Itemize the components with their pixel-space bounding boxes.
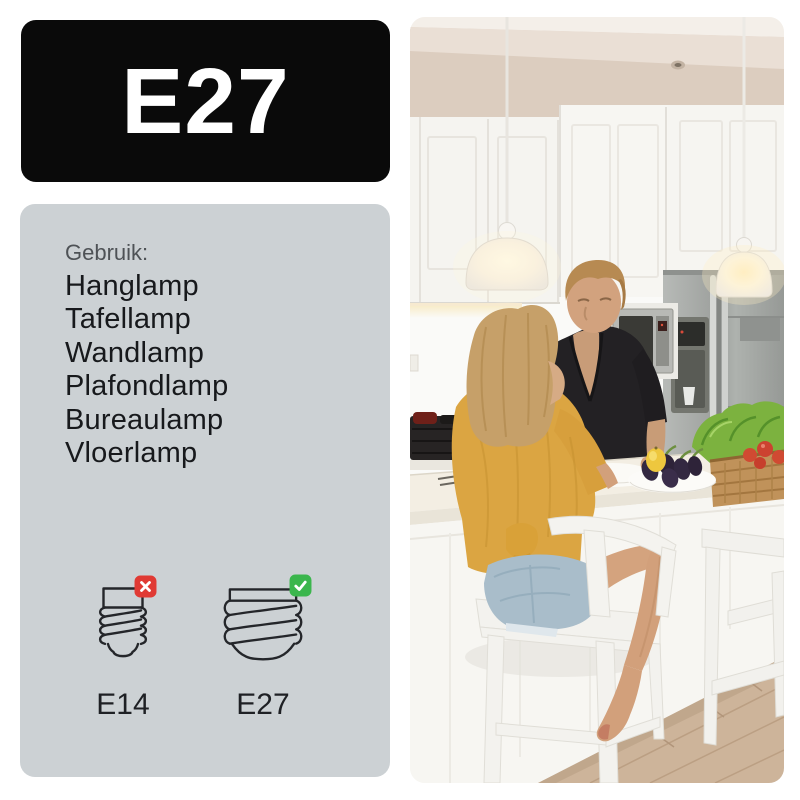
kitchen-scene xyxy=(410,17,784,783)
socket-label-e27: E27 xyxy=(213,688,313,722)
woman-hair xyxy=(467,305,559,447)
product-infographic: E27 Gebruik: Hanglamp Tafellamp Wandlamp… xyxy=(0,0,800,800)
under-cabinet-light xyxy=(410,303,522,306)
usage-item: Hanglamp xyxy=(65,270,228,303)
usage-item: Tafellamp xyxy=(65,303,228,336)
usage-item: Vloerlamp xyxy=(65,437,228,470)
usage-item: Bureaulamp xyxy=(65,404,228,437)
usage-item: Plafondlamp xyxy=(65,370,228,403)
socket-type-banner: E27 xyxy=(21,20,390,182)
light-switch xyxy=(410,355,418,371)
kitchen-photo xyxy=(410,17,784,783)
e27-socket-icon xyxy=(222,588,304,666)
not-compatible-badge xyxy=(134,575,157,598)
compatible-badge xyxy=(289,574,312,597)
banner-label: E27 xyxy=(121,55,289,148)
usage-heading: Gebruik: xyxy=(65,240,148,266)
socket-label-e14: E14 xyxy=(73,688,173,722)
usage-item: Wandlamp xyxy=(65,337,228,370)
usage-panel: Gebruik: Hanglamp Tafellamp Wandlamp Pla… xyxy=(20,204,390,777)
denim-shorts xyxy=(484,555,600,630)
usage-list: Hanglamp Tafellamp Wandlamp Plafondlamp … xyxy=(65,270,228,470)
